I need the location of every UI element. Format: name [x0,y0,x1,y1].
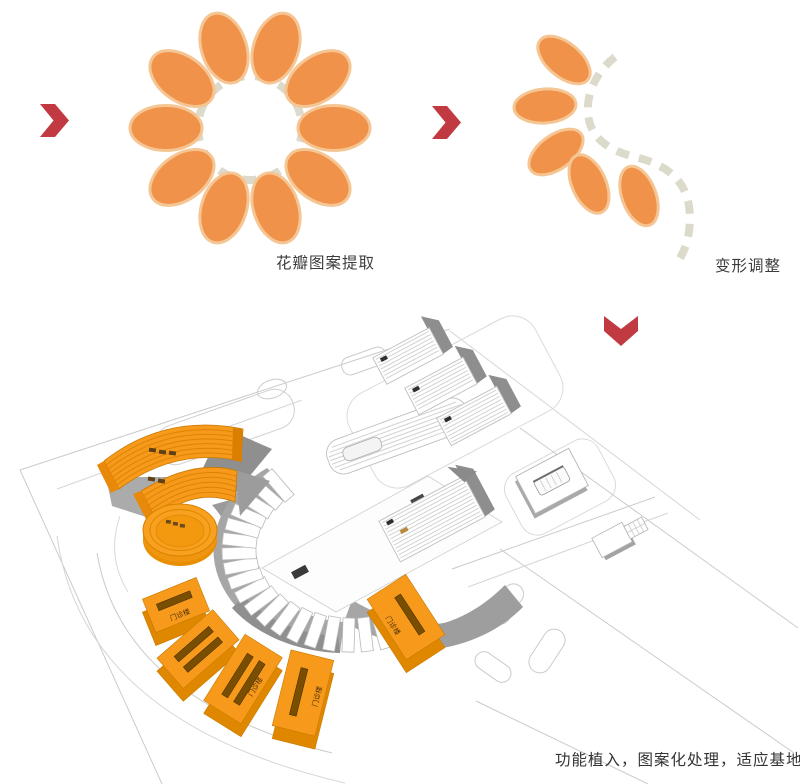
cylinder-building [143,504,217,566]
step2-chevron-right-icon [432,106,461,139]
site-model: 门诊楼门诊楼门诊楼门诊楼 [20,307,798,784]
wedge-building: 门诊楼 [272,650,334,736]
step3-chevron-down-icon [604,316,638,346]
petal [612,161,665,231]
caption-petal-extraction: 花瓣图案提取 [276,251,375,273]
flower-pattern [130,7,370,249]
small-box-buildings [592,517,648,561]
caption-deformation-adjustment: 变形调整 [715,254,781,276]
dashed-s-curve [588,57,690,264]
petal [529,27,598,93]
concept-diagram-page: 门诊楼门诊楼门诊楼门诊楼 花瓣图案提取 变形调整 功能植入，图案化处理，适应基地 [0,0,800,784]
caption-function-implantation: 功能植入，图案化处理，适应基地 [555,748,800,770]
petal [513,87,577,125]
petal [130,106,202,151]
deformed-flower-pattern [513,27,690,264]
arc-slat [342,618,355,652]
courtyard-box-building [513,448,590,518]
arc-slat [222,547,256,560]
step1-chevron-right-icon [40,104,69,137]
petal [298,106,370,151]
diagram-canvas: 门诊楼门诊楼门诊楼门诊楼 [0,0,800,784]
